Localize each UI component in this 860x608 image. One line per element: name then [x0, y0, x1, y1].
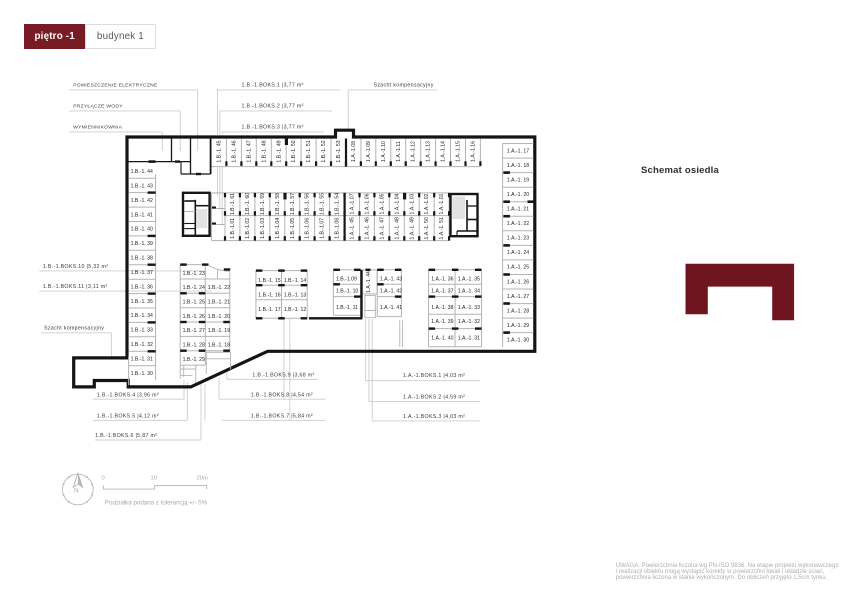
svg-text:10: 10: [151, 476, 157, 482]
svg-text:1.A.-1. 47: 1.A.-1. 47: [379, 217, 385, 239]
svg-text:1.A.-1. 42: 1.A.-1. 42: [380, 289, 402, 295]
svg-text:1.A.-1.05: 1.A.-1.05: [379, 193, 385, 214]
svg-text:1.B.-1.BOKS.7 |5,84 m²: 1.B.-1.BOKS.7 |5,84 m²: [251, 414, 313, 420]
svg-text:1.B.-1.05: 1.B.-1.05: [290, 218, 296, 239]
svg-text:1.A.-1. 20: 1.A.-1. 20: [507, 192, 529, 198]
svg-text:1.A.-1.BOKS.3 |4,03 m²: 1.A.-1.BOKS.3 |4,03 m²: [403, 414, 465, 420]
svg-text:1.B.-1. 32: 1.B.-1. 32: [131, 342, 153, 348]
svg-text:1.B.-1.BOKS.4 |3,96 m²: 1.B.-1.BOKS.4 |3,96 m²: [97, 392, 159, 398]
svg-text:1.A.-1.11: 1.A.-1.11: [396, 141, 402, 162]
svg-text:1.B.-1.08: 1.B.-1.08: [335, 218, 341, 239]
svg-text:1.B.-1.BOKS.6 |5,87 m²: 1.B.-1.BOKS.6 |5,87 m²: [95, 433, 157, 439]
svg-text:1.A.-1. 35: 1.A.-1. 35: [458, 277, 480, 283]
svg-text:1.A.-1. 31: 1.A.-1. 31: [458, 336, 480, 342]
svg-text:1.A.-1. 29: 1.A.-1. 29: [507, 323, 529, 329]
svg-text:1.B.-1. 38: 1.B.-1. 38: [131, 256, 153, 262]
svg-text:1.B.-1. 11: 1.B.-1. 11: [336, 305, 358, 311]
svg-text:1.A.-1.12: 1.A.-1.12: [411, 141, 417, 162]
svg-text:1.B.-1. 46: 1.B.-1. 46: [231, 140, 237, 162]
svg-text:1.B.-1.BOKS.11 |3,11 m²: 1.B.-1.BOKS.11 |3,11 m²: [43, 284, 108, 290]
svg-text:0: 0: [102, 476, 105, 482]
svg-text:1.B.-1. 30: 1.B.-1. 30: [131, 371, 153, 377]
svg-text:1.B.-1. 58: 1.B.-1. 58: [275, 193, 281, 215]
svg-text:1.B.-1. 56: 1.B.-1. 56: [305, 193, 311, 215]
svg-text:1.B.-1. 48: 1.B.-1. 48: [261, 140, 267, 162]
svg-text:1.A.-1. 37: 1.A.-1. 37: [431, 289, 453, 295]
svg-text:Podziałka podana z tolerancją: Podziałka podana z tolerancją +/- 5%: [105, 499, 208, 506]
svg-text:1.A.-1. 36: 1.A.-1. 36: [431, 277, 453, 283]
svg-text:1.A.-1. 39: 1.A.-1. 39: [431, 319, 453, 325]
svg-text:1.A.-1.07: 1.A.-1.07: [350, 193, 356, 214]
svg-text:1.A.-1. 19: 1.A.-1. 19: [507, 177, 529, 183]
svg-text:1.B.-1. 16: 1.B.-1. 16: [258, 292, 280, 298]
svg-text:1.B.-1.01: 1.B.-1.01: [230, 218, 236, 239]
svg-text:1.B.-1. 18: 1.B.-1. 18: [208, 343, 230, 349]
svg-text:1.B.-1. 20: 1.B.-1. 20: [208, 314, 230, 320]
svg-text:1.B.-1. 51: 1.B.-1. 51: [306, 140, 312, 162]
svg-text:1.B.-1. 53: 1.B.-1. 53: [336, 140, 342, 162]
svg-text:1.B.-1. 42: 1.B.-1. 42: [131, 198, 153, 204]
svg-text:1.A.-1.08: 1.A.-1.08: [351, 141, 357, 162]
svg-text:1.A.-1. 44: 1.A.-1. 44: [366, 271, 372, 293]
svg-text:1.B.-1.BOKS.8 |4,54 m²: 1.B.-1.BOKS.8 |4,54 m²: [251, 392, 313, 398]
svg-text:1.B.-1. 61: 1.B.-1. 61: [230, 193, 236, 215]
svg-text:1.B.-1. 41: 1.B.-1. 41: [131, 212, 153, 218]
svg-text:1.A.-1. 43: 1.A.-1. 43: [380, 277, 402, 283]
svg-text:1.A.-1. 41: 1.A.-1. 41: [380, 305, 402, 311]
svg-text:1.A.-1.13: 1.A.-1.13: [426, 141, 432, 162]
svg-text:1.B.-1.BOKS.5 |4,12 m²: 1.B.-1.BOKS.5 |4,12 m²: [97, 414, 159, 420]
svg-text:1.B.-1. 55: 1.B.-1. 55: [320, 193, 326, 215]
svg-text:1.A.-1. 26: 1.A.-1. 26: [507, 279, 529, 285]
svg-text:1.B.-1. 15: 1.B.-1. 15: [258, 278, 280, 284]
svg-text:1.A.-1.04: 1.A.-1.04: [394, 193, 400, 214]
svg-text:Szacht kompensacyjny: Szacht kompensacyjny: [374, 83, 434, 89]
svg-text:1.A.-1.01: 1.A.-1.01: [439, 193, 445, 214]
svg-text:1.B.-1.07: 1.B.-1.07: [320, 218, 326, 239]
svg-text:1.B.-1. 37: 1.B.-1. 37: [131, 270, 153, 276]
svg-text:20m: 20m: [197, 476, 208, 482]
svg-text:N: N: [74, 487, 79, 494]
svg-text:1.A.-1.BOKS.1 |4,03 m²: 1.A.-1.BOKS.1 |4,03 m²: [403, 373, 465, 379]
svg-text:1.B.-1. 27: 1.B.-1. 27: [183, 328, 205, 334]
svg-text:1.A.-1. 45: 1.A.-1. 45: [350, 217, 356, 239]
svg-text:1.A.-1. 17: 1.A.-1. 17: [507, 148, 529, 154]
svg-text:Szacht kompensacyjny: Szacht kompensacyjny: [44, 326, 104, 332]
svg-text:1.A.-1.16: 1.A.-1.16: [471, 141, 477, 162]
svg-text:1.A.-1.03: 1.A.-1.03: [409, 193, 415, 214]
svg-text:1.B.-1. 12: 1.B.-1. 12: [284, 307, 306, 313]
svg-text:1.B.-1. 25: 1.B.-1. 25: [183, 300, 205, 306]
svg-text:1.A.-1. 32: 1.A.-1. 32: [458, 319, 480, 325]
svg-text:1.A.-1. 38: 1.A.-1. 38: [431, 305, 453, 311]
svg-text:1.B.-1.BOKS.1 |3,77 m²: 1.B.-1.BOKS.1 |3,77 m²: [242, 83, 304, 89]
svg-text:1.B.-1. 19: 1.B.-1. 19: [208, 328, 230, 334]
svg-text:1.A.-1.10: 1.A.-1.10: [381, 141, 387, 162]
svg-text:1.A.-1. 30: 1.A.-1. 30: [507, 337, 529, 343]
svg-text:PRZYŁĄCZE WODY: PRZYŁĄCZE WODY: [73, 104, 123, 110]
svg-text:1.A.-1.02: 1.A.-1.02: [424, 193, 430, 214]
svg-text:1.B.-1.03: 1.B.-1.03: [260, 218, 266, 239]
svg-text:1.B.-1. 60: 1.B.-1. 60: [245, 193, 251, 215]
svg-text:1.B.-1. 47: 1.B.-1. 47: [246, 140, 252, 162]
svg-text:1.A.-1. 49: 1.A.-1. 49: [409, 217, 415, 239]
svg-text:1.A.-1. 18: 1.A.-1. 18: [507, 163, 529, 169]
svg-text:1.A.-1.BOKS.2 |4,59 m²: 1.A.-1.BOKS.2 |4,59 m²: [403, 394, 465, 400]
svg-text:1.B.-1. 14: 1.B.-1. 14: [284, 278, 306, 284]
svg-text:1.B.-1. 17: 1.B.-1. 17: [258, 307, 280, 313]
svg-text:1.B.-1. 39: 1.B.-1. 39: [131, 241, 153, 247]
svg-text:1.B.-1. 21: 1.B.-1. 21: [208, 300, 230, 306]
svg-text:1.A.-1.09: 1.A.-1.09: [366, 141, 372, 162]
svg-text:1.A.-1. 48: 1.A.-1. 48: [394, 217, 400, 239]
svg-text:1.B.-1. 40: 1.B.-1. 40: [131, 227, 153, 233]
svg-text:1.B.-1. 54: 1.B.-1. 54: [335, 193, 341, 215]
svg-text:1.A.-1. 51: 1.A.-1. 51: [439, 217, 445, 239]
svg-text:1.A.-1. 50: 1.A.-1. 50: [424, 217, 430, 239]
svg-text:1.B.-1. 59: 1.B.-1. 59: [260, 193, 266, 215]
svg-text:1.B.-1. 28: 1.B.-1. 28: [183, 343, 205, 349]
svg-text:1.B.-1.06: 1.B.-1.06: [305, 218, 311, 239]
svg-text:WYMIENNIKOWNIA: WYMIENNIKOWNIA: [73, 125, 122, 131]
svg-text:1.A.-1.15: 1.A.-1.15: [456, 141, 462, 162]
svg-text:1.B.-1. 44: 1.B.-1. 44: [131, 169, 153, 175]
svg-text:1.B.-1. 52: 1.B.-1. 52: [321, 140, 327, 162]
svg-text:1.B.-1. 13: 1.B.-1. 13: [284, 292, 306, 298]
svg-text:1.B.-1. 43: 1.B.-1. 43: [131, 183, 153, 189]
svg-text:1.A.-1. 40: 1.A.-1. 40: [431, 336, 453, 342]
svg-text:1.B.-1.BOKS.3 |3,77 m²: 1.B.-1.BOKS.3 |3,77 m²: [242, 125, 304, 131]
svg-text:1.B.-1.04: 1.B.-1.04: [275, 218, 281, 239]
svg-text:1.A.-1. 33: 1.A.-1. 33: [458, 305, 480, 311]
svg-text:1.A.-1. 27: 1.A.-1. 27: [507, 294, 529, 300]
svg-text:1.B.-1. 36: 1.B.-1. 36: [131, 284, 153, 290]
svg-text:1.B.-1. 45: 1.B.-1. 45: [217, 140, 223, 162]
svg-text:1.B.-1. 29: 1.B.-1. 29: [183, 357, 205, 363]
svg-text:1.B.-1. 22: 1.B.-1. 22: [208, 285, 230, 291]
svg-text:1.A.-1. 22: 1.A.-1. 22: [507, 221, 529, 227]
svg-text:1.A.-1.06: 1.A.-1.06: [365, 193, 371, 214]
svg-text:1.A.-1. 24: 1.A.-1. 24: [507, 250, 529, 256]
svg-text:1.B.-1. 49: 1.B.-1. 49: [276, 140, 282, 162]
svg-text:1.B.-1.BOKS.2 |3,77 m²: 1.B.-1.BOKS.2 |3,77 m²: [242, 104, 304, 110]
svg-text:1.B.-1. 24: 1.B.-1. 24: [183, 285, 205, 291]
svg-text:1.B.-1.09: 1.B.-1.09: [336, 277, 357, 283]
svg-text:1.A.-1. 25: 1.A.-1. 25: [507, 265, 529, 271]
svg-text:1.A.-1. 34: 1.A.-1. 34: [458, 289, 480, 295]
svg-text:1.A.-1. 21: 1.A.-1. 21: [507, 207, 529, 213]
svg-text:1.B.-1. 33: 1.B.-1. 33: [131, 328, 153, 334]
svg-text:1.A.-1. 46: 1.A.-1. 46: [365, 217, 371, 239]
svg-text:1.A.-1.14: 1.A.-1.14: [441, 141, 447, 162]
svg-text:1.A.-1. 28: 1.A.-1. 28: [507, 308, 529, 314]
svg-text:1.B.-1.BOKS.9 |3,68 m²: 1.B.-1.BOKS.9 |3,68 m²: [252, 373, 314, 379]
svg-text:1.B.-1. 23: 1.B.-1. 23: [183, 271, 205, 277]
svg-text:POMIESZCZENIE ELEKTRYCZNE: POMIESZCZENIE ELEKTRYCZNE: [73, 83, 158, 89]
svg-text:1.B.-1. 26: 1.B.-1. 26: [183, 314, 205, 320]
svg-text:1.B.-1. 34: 1.B.-1. 34: [131, 313, 153, 319]
svg-text:1.B.-1. 31: 1.B.-1. 31: [131, 357, 153, 363]
svg-text:1.B.-1.BOKS.10 |5,32 m²: 1.B.-1.BOKS.10 |5,32 m²: [43, 264, 108, 270]
svg-text:1.B.-1. 35: 1.B.-1. 35: [131, 299, 153, 305]
svg-text:1.B.-1. 50: 1.B.-1. 50: [291, 140, 297, 162]
svg-text:1.B.-1.02: 1.B.-1.02: [245, 218, 251, 239]
svg-text:1.B.-1. 57: 1.B.-1. 57: [290, 193, 296, 215]
svg-text:1.B.-1. 10: 1.B.-1. 10: [336, 289, 358, 295]
svg-text:1.A.-1. 23: 1.A.-1. 23: [507, 236, 529, 242]
